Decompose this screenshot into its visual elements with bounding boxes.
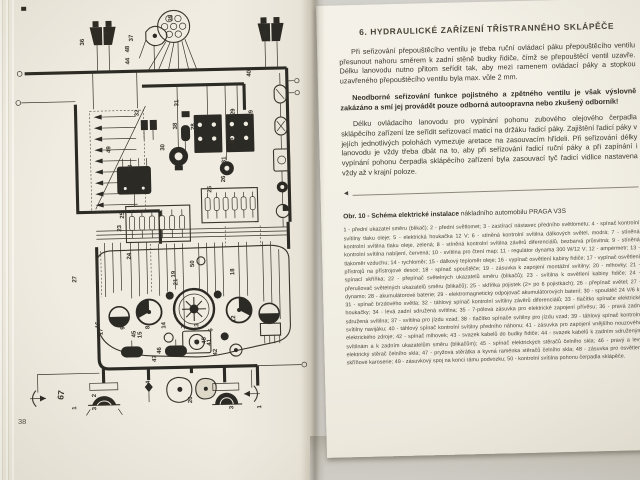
paragraph-1-text: Při seřizování přepouštěcího ventilu je … <box>339 40 635 85</box>
headlamp-2-left <box>86 383 123 416</box>
svg-text:3: 3 <box>229 405 235 409</box>
pointer-left-icon: ◄ <box>343 192 350 198</box>
relay-43 <box>117 158 152 207</box>
svg-text:46: 46 <box>157 346 163 353</box>
wiring-diagram: 3643748443534403929323138302828494325252… <box>0 0 316 480</box>
svg-text:39: 39 <box>249 109 255 116</box>
figure-caption-bold: Obr. 10 - Schéma elektrické instalace <box>343 211 459 221</box>
svg-text:41: 41 <box>207 338 213 345</box>
svg-text:15: 15 <box>138 331 144 338</box>
wiper-motors-46 <box>121 339 187 357</box>
switch-32 <box>141 120 157 140</box>
svg-text:40: 40 <box>247 69 253 76</box>
right-page: 6. HYDRAULICKÉ ZAŘÍZENÍ TŘÍSTRANNÉHO SKL… <box>316 0 640 458</box>
svg-text:47: 47 <box>152 355 158 362</box>
divider-rule <box>353 186 639 195</box>
svg-text:42: 42 <box>213 348 219 355</box>
svg-text:5: 5 <box>195 339 201 343</box>
svg-text:12: 12 <box>231 315 237 322</box>
svg-text:38: 38 <box>173 122 179 129</box>
svg-text:50: 50 <box>190 260 196 267</box>
svg-text:25: 25 <box>120 211 126 218</box>
left-page-number: 38 <box>18 417 26 426</box>
svg-text:29: 29 <box>230 108 236 115</box>
svg-text:19: 19 <box>171 270 177 277</box>
svg-text:36: 36 <box>80 38 86 45</box>
open-book: 3643748443534403929323138302828494325252… <box>0 0 640 480</box>
svg-text:14: 14 <box>161 321 167 328</box>
paragraph-3: Délku ovládacího lanovodu pro vypínání p… <box>341 112 638 177</box>
svg-text:6: 6 <box>208 328 214 332</box>
svg-text:31: 31 <box>222 156 228 163</box>
svg-text:21: 21 <box>173 278 179 285</box>
left-page: 3643748443534403929323138302828494325252… <box>0 0 316 480</box>
svg-text:37: 37 <box>129 34 135 41</box>
svg-text:48: 48 <box>125 45 131 52</box>
rear-lamp-34 <box>257 17 284 69</box>
svg-text:16: 16 <box>95 321 101 328</box>
figure-legend: 1 - přední ukazatel směru (blikač); 2 - … <box>343 220 640 368</box>
svg-text:24: 24 <box>127 252 133 259</box>
plug-38 <box>181 125 191 151</box>
svg-text:23: 23 <box>117 224 123 231</box>
svg-text:3: 3 <box>92 406 98 410</box>
svg-text:13: 13 <box>194 323 200 330</box>
paragraph-1: Při seřizování přepouštěcího ventilu je … <box>339 40 636 86</box>
svg-text:18: 18 <box>230 268 236 275</box>
chapter-title: 6. HYDRAULICKÉ ZAŘÍZENÍ TŘÍSTRANNÉHO SKL… <box>339 20 635 37</box>
svg-text:32: 32 <box>134 109 140 116</box>
paragraph-3-text: Délku ovládacího lanovodu pro vypínání p… <box>341 112 638 177</box>
reversing-lamp-37 <box>139 26 168 71</box>
svg-text:8: 8 <box>145 325 151 329</box>
svg-text:20: 20 <box>188 396 194 403</box>
section-divider: ◄ <box>343 185 639 198</box>
svg-text:34: 34 <box>263 30 269 37</box>
svg-text:1: 1 <box>72 406 78 410</box>
svg-text:4: 4 <box>146 380 152 384</box>
svg-text:17: 17 <box>98 328 104 335</box>
svg-text:30: 30 <box>160 143 166 150</box>
figure-caption-rest: nákladního automobilu PRAGA V3S <box>459 208 566 218</box>
svg-text:44: 44 <box>125 57 131 64</box>
switch-31 <box>182 111 190 117</box>
svg-text:28: 28 <box>229 137 235 144</box>
paragraph-2-warning: Neodborné seřizování funkce pojistného a… <box>340 86 636 113</box>
svg-text:27: 27 <box>72 275 78 282</box>
svg-text:31: 31 <box>174 99 180 106</box>
svg-text:26: 26 <box>221 175 227 182</box>
figure-side-label: 67 <box>55 390 66 400</box>
socket-41 <box>260 323 280 343</box>
svg-text:1: 1 <box>257 404 263 408</box>
paragraph-2-text: Neodborné seřizování funkce pojistného a… <box>340 86 636 112</box>
figure-caption: Obr. 10 - Schéma elektrické instalace ná… <box>343 207 639 221</box>
svg-text:43: 43 <box>128 164 134 171</box>
rear-lamp-36 <box>89 21 116 73</box>
book-gutter <box>301 0 325 480</box>
svg-text:49: 49 <box>106 145 112 152</box>
svg-text:28: 28 <box>191 123 197 130</box>
svg-text:2: 2 <box>92 393 98 397</box>
svg-text:25: 25 <box>207 185 213 192</box>
svg-text:35: 35 <box>168 14 174 21</box>
